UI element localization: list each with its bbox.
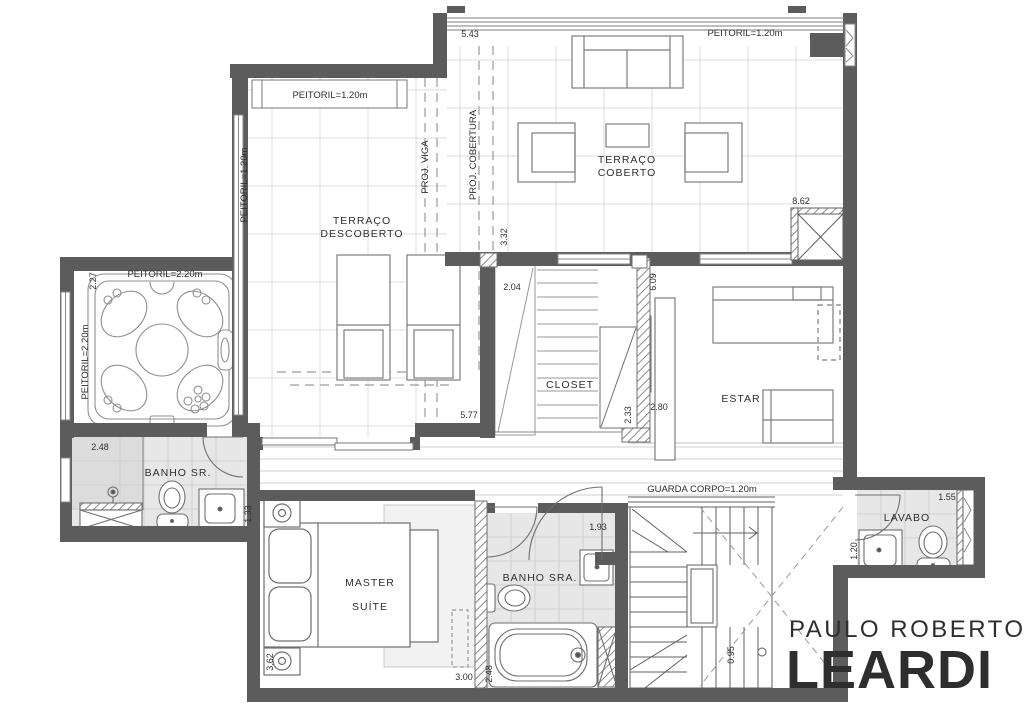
dim-3-00: 3.00 — [455, 672, 473, 682]
shower-sill — [80, 503, 142, 510]
floor-plan-canvas: 5.43 PEITORIL=1.20m TERRAÇO COBERTO 8.62… — [0, 0, 1024, 712]
sun-lounger — [407, 255, 460, 380]
room-label-banho-sra: BANHO SRA. — [503, 572, 578, 584]
dim-8-62: 8.62 — [792, 196, 810, 206]
dim-2-04: 2.04 — [503, 282, 521, 292]
armchair — [518, 123, 575, 182]
annotation-guarda-corpo: GUARDA CORPO=1.20m — [647, 484, 757, 495]
room-label-terraco-descoberto: DESCOBERTO — [320, 228, 403, 240]
guard-rail — [628, 497, 775, 507]
logo-line-2: LEARDI — [786, 640, 993, 700]
sun-lounger — [337, 255, 390, 380]
window — [61, 458, 70, 502]
closet-shelves — [537, 270, 598, 418]
dim-3-32: 3.32 — [499, 228, 509, 246]
wall-hatched — [622, 428, 650, 442]
bed-bench — [410, 530, 438, 642]
annotation-peitoril-descoberto-wall: PEITORIL=1.20m — [239, 147, 250, 222]
dim-6-09: 6.09 — [648, 273, 658, 291]
wall — [60, 423, 207, 437]
dim-2-48-banho-sra: 2.48 — [484, 665, 494, 683]
shaft-hatch — [957, 490, 963, 565]
wall — [247, 688, 848, 702]
dim-0-95: 0.95 — [726, 646, 736, 664]
dim-2-48-banho-sr: 2.48 — [91, 442, 109, 452]
dim-1-55: 1.55 — [938, 492, 956, 502]
pillow — [269, 587, 311, 641]
wall-hatched — [475, 501, 487, 688]
dim-1-20: 1.20 — [849, 542, 859, 560]
room-label-master-suite: MASTER — [345, 577, 395, 589]
wall — [60, 526, 250, 542]
wall — [415, 423, 480, 437]
coffee-table — [606, 124, 649, 147]
sliding-door-panel — [262, 438, 337, 445]
logo-line-1: PAULO ROBERTO — [789, 616, 1024, 643]
column-gap — [632, 255, 647, 268]
room-label-terraco-descoberto: TERRAÇO — [333, 215, 391, 227]
wall — [480, 265, 495, 438]
annotation-peitoril-spa-top: PEITORIL=2.20m — [127, 269, 202, 280]
room-label-terraco-coberto: TERRAÇO — [598, 154, 656, 166]
dim-2-80: 2.80 — [650, 402, 668, 412]
room-label-lavabo: LAVABO — [884, 512, 930, 524]
tv-cabinet — [655, 298, 675, 460]
dim-5-43: 5.43 — [461, 29, 479, 39]
toilet — [919, 526, 947, 558]
wall — [810, 33, 844, 57]
terraco-descoberto-furniture — [337, 255, 460, 380]
annotation-peitoril-spa-left: PEITORIL=2.20m — [80, 324, 91, 399]
room-label-master-suite: SUÍTE — [352, 600, 388, 613]
window-band — [447, 18, 845, 30]
wall-hatched — [480, 253, 497, 267]
floor-plan-page: 5.43 PEITORIL=1.20m TERRAÇO COBERTO 8.62… — [0, 0, 1024, 712]
jacuzzi — [88, 274, 236, 426]
sliding-door-panel — [335, 443, 413, 450]
dim-1-33: 1.33 — [243, 505, 253, 523]
wall — [615, 503, 628, 688]
wall — [252, 490, 475, 501]
dim-1-93: 1.93 — [589, 522, 607, 532]
dim-3-62: 3.62 — [265, 653, 275, 671]
annotation-proj-viga: PROJ. VIGA — [420, 140, 431, 194]
wall — [843, 13, 857, 479]
window-anchor — [788, 6, 806, 13]
room-label-closet: CLOSET — [546, 379, 594, 391]
dim-2-33: 2.33 — [623, 406, 633, 424]
annotation-peitoril-descoberto-window: PEITORIL=1.20m — [292, 90, 367, 101]
dim-2-27: 2.27 — [88, 272, 98, 290]
sofa — [713, 287, 833, 343]
dim-5-77: 5.77 — [460, 410, 478, 420]
estar-furniture — [646, 287, 840, 460]
brand-logo: PAULO ROBERTO LEARDI — [786, 616, 1024, 700]
wall — [595, 552, 625, 565]
wall — [833, 477, 985, 490]
wall — [848, 565, 985, 578]
jacuzzi-control-panel — [218, 330, 233, 370]
armchair — [685, 123, 742, 182]
wall — [230, 64, 447, 78]
wall — [247, 423, 260, 702]
room-label-terraco-coberto: COBERTO — [598, 167, 657, 179]
annotation-proj-cobertura: PROJ. COBERTURA — [468, 109, 479, 200]
pillow — [269, 529, 311, 583]
sofa — [763, 390, 833, 443]
vent-shaft — [963, 490, 974, 565]
wall — [487, 503, 495, 513]
room-label-estar: ESTAR — [721, 393, 760, 405]
window-anchor — [447, 6, 465, 13]
room-label-banho-sr: BANHO SR. — [145, 467, 212, 479]
annotation-peitoril-coberto: PEITORIL=1.20m — [707, 28, 782, 39]
